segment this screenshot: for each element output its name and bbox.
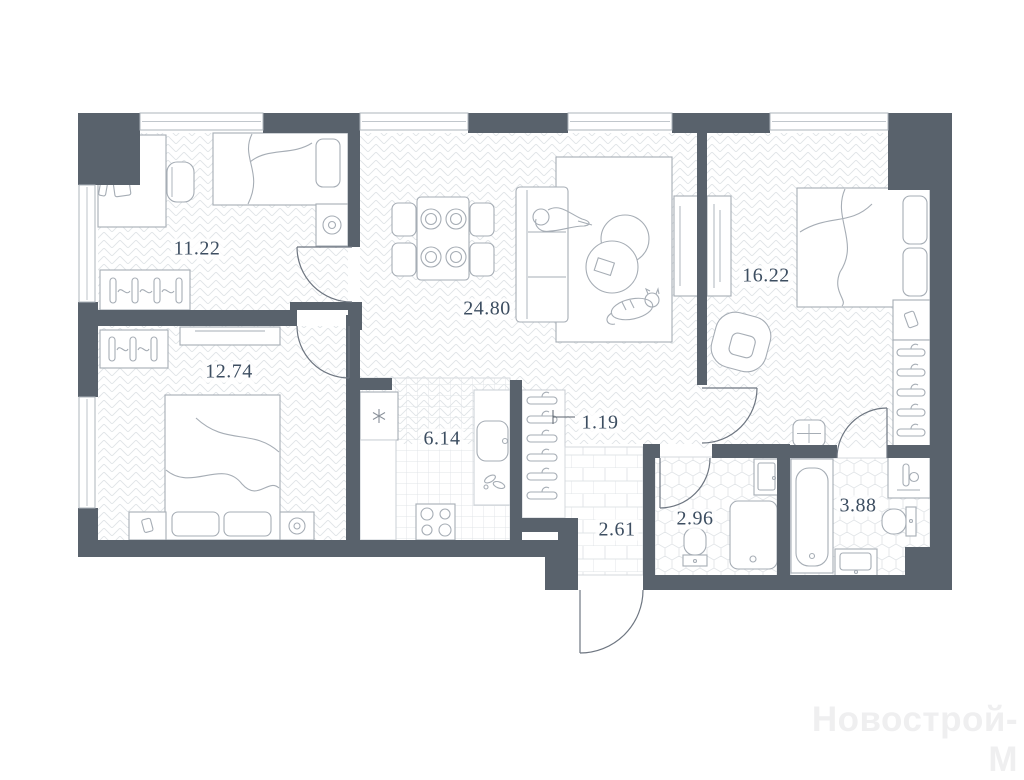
nightstand-right — [280, 512, 314, 540]
radiator — [100, 330, 168, 368]
area-label-bedroom2: 12.74 — [202, 362, 256, 383]
wc-toilet-tank — [683, 555, 707, 566]
tv-console — [674, 196, 698, 296]
wall-kitchen-top — [346, 378, 392, 390]
wall-top — [468, 113, 568, 133]
wall-step — [558, 518, 578, 543]
area-label-closet: 1.19 — [579, 413, 622, 434]
wall-entry-step — [545, 540, 578, 590]
wall-bedroom1-bottom — [290, 302, 348, 310]
bed-pillow — [316, 139, 340, 187]
dining-table — [417, 197, 469, 280]
dining-chair — [392, 243, 416, 276]
wall-top — [672, 113, 770, 133]
bath-toilet-tank — [906, 507, 916, 536]
wall-bedroom1-living — [348, 113, 360, 247]
shower-tray — [730, 501, 777, 569]
bed-pillow-right — [224, 512, 271, 536]
bed-pillow-bottom — [903, 248, 927, 296]
wall-bottom — [78, 540, 545, 557]
bed-pillow-left — [172, 512, 219, 536]
dining-chair — [392, 203, 416, 236]
window-top-3 — [568, 113, 672, 130]
wall-corner-top-left — [78, 113, 140, 185]
counter-left — [360, 440, 396, 540]
wall-bedroom2-kitchen — [346, 315, 360, 543]
area-label-wc: 2.96 — [674, 509, 717, 530]
wall-closet-bottom — [520, 518, 563, 532]
wall-bathroom-top-right — [887, 445, 930, 458]
wall-living-bedroom3 — [697, 113, 707, 385]
wall-right — [930, 190, 952, 590]
window-top-2 — [360, 113, 468, 130]
wall-left — [78, 302, 98, 397]
wall-between-bedrooms — [98, 310, 297, 326]
bed-pillow-top — [903, 196, 927, 244]
dresser — [180, 327, 280, 345]
desk-chair — [167, 162, 194, 202]
dining-chair — [470, 203, 494, 236]
window-top-4 — [770, 113, 888, 130]
area-label-bathroom: 3.88 — [837, 496, 880, 517]
wall-top — [263, 113, 360, 133]
area-label-living: 24.80 — [460, 299, 514, 320]
door-entrance — [580, 590, 643, 653]
area-label-bedroom1: 11.22 — [171, 239, 224, 260]
floor-plan: 11.22 12.74 24.80 16.22 6.14 1.19 2.61 2… — [0, 0, 1024, 768]
nightstand — [316, 204, 348, 246]
sofa — [516, 187, 568, 322]
wall-wc-top-left — [643, 444, 660, 458]
window-left-2 — [79, 397, 95, 508]
bath-toilet-bowl — [882, 509, 906, 534]
area-label-hall: 2.61 — [596, 520, 639, 541]
window-top-1 — [140, 113, 263, 130]
wall-bathroom-top-left — [790, 445, 837, 458]
wall-hall-wc — [643, 457, 655, 575]
wc-toilet-bowl — [684, 528, 706, 555]
duct-shaft — [905, 547, 930, 575]
watermark: Новострой-М — [788, 700, 1018, 780]
wardrobe-left — [707, 196, 731, 296]
window-left-1 — [79, 185, 95, 302]
area-label-bedroom3: 16.22 — [739, 266, 793, 287]
wall-wc-bathroom — [777, 444, 790, 575]
floor-plan-drawing — [0, 0, 1024, 768]
wall-corner-top-right — [888, 113, 952, 190]
wall-bottom — [643, 575, 930, 590]
dining-chair — [470, 243, 494, 276]
wall-wc-top-right — [712, 444, 777, 458]
area-label-kitchen: 6.14 — [421, 429, 464, 450]
